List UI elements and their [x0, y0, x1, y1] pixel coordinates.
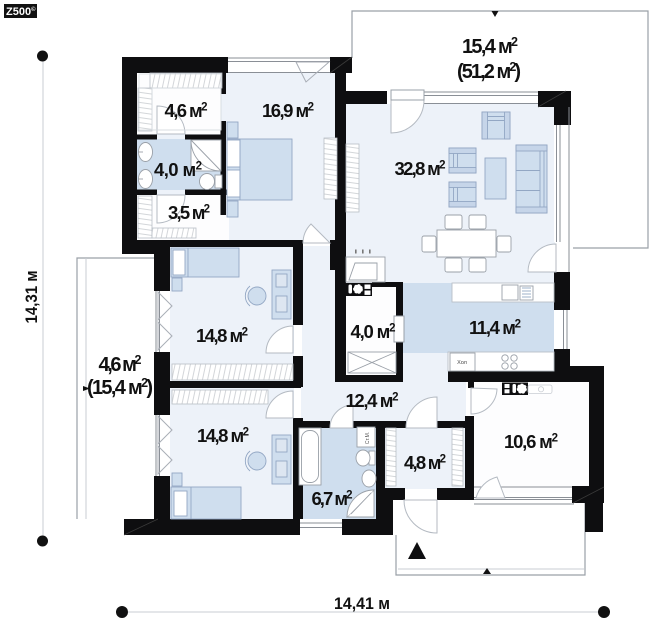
svg-text:15,4 м2: 15,4 м2 [462, 35, 518, 58]
svg-text:Ст.М.: Ст.М. [365, 432, 371, 444]
svg-text:12,4 м2: 12,4 м2 [346, 390, 399, 411]
svg-text:4,0 м2: 4,0 м2 [351, 321, 396, 342]
svg-text:Хол: Хол [457, 360, 467, 366]
svg-text:4,8 м2: 4,8 м2 [404, 452, 446, 473]
svg-text:10,6 м2: 10,6 м2 [504, 431, 558, 452]
svg-text:11,4 м2: 11,4 м2 [469, 317, 521, 338]
svg-text:16,9 м2: 16,9 м2 [262, 100, 314, 121]
svg-text:3,5 м2: 3,5 м2 [168, 202, 210, 223]
svg-text:6,7 м2: 6,7 м2 [312, 488, 353, 509]
svg-text:4,6 м2: 4,6 м2 [165, 100, 208, 121]
svg-text:4,0 м2: 4,0 м2 [154, 159, 202, 180]
svg-text:4,6 м2: 4,6 м2 [99, 353, 142, 376]
svg-text:32,8 м2: 32,8 м2 [395, 158, 446, 179]
svg-text:14,8 м2: 14,8 м2 [196, 325, 248, 346]
svg-text:14,31 м: 14,31 м [22, 271, 41, 324]
svg-text:14,41 м: 14,41 м [334, 594, 390, 613]
svg-text:14,8 м2: 14,8 м2 [197, 425, 249, 446]
